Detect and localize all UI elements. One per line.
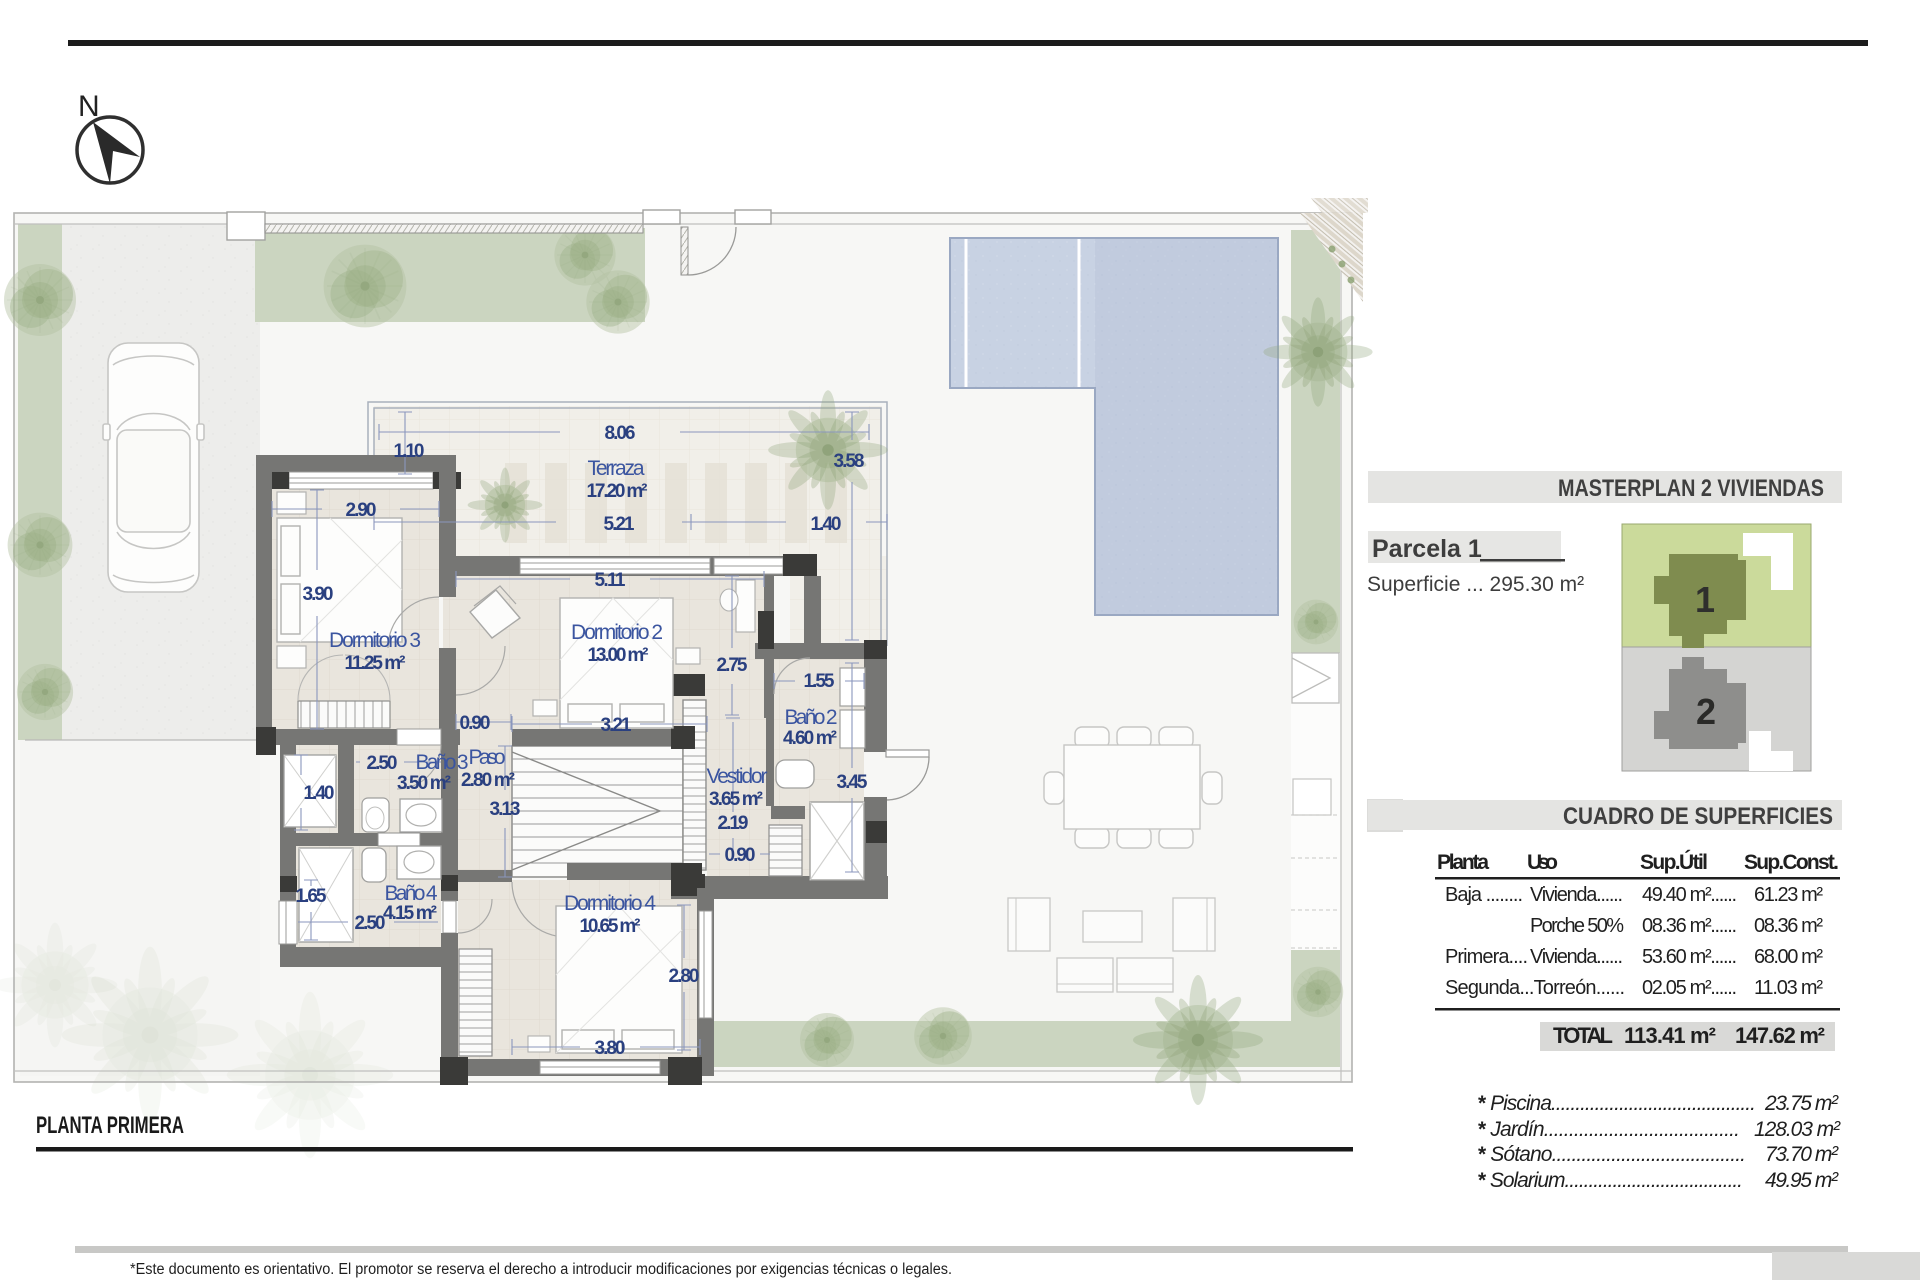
svg-text:Parcela 1: Parcela 1: [1372, 535, 1482, 563]
svg-text:3.58: 3.58: [834, 451, 865, 472]
svg-text:2.19: 2.19: [718, 813, 749, 834]
svg-text:2.80: 2.80: [669, 966, 700, 987]
svg-text:3.13: 3.13: [490, 799, 521, 820]
svg-text:Uso: Uso: [1527, 851, 1558, 874]
svg-text:Paso: Paso: [469, 746, 506, 769]
svg-text:5.11: 5.11: [595, 570, 626, 591]
svg-text:5.21: 5.21: [604, 514, 635, 535]
svg-text:08.36 m²......: 08.36 m²......: [1642, 915, 1737, 937]
svg-text:Dormitorio 2: Dormitorio 2: [571, 621, 663, 644]
svg-text:8.06: 8.06: [605, 423, 636, 444]
svg-text:1.10: 1.10: [394, 441, 425, 462]
svg-text:23.75 m²: 23.75 m²: [1764, 1092, 1839, 1115]
svg-text:* Sótano......................: * Sótano................................…: [1478, 1143, 1746, 1166]
svg-text:*Este documento es orientativo: *Este documento es orientativo. El promo…: [130, 1261, 952, 1278]
svg-text:49.95 m²: 49.95 m²: [1765, 1169, 1839, 1192]
svg-text:4.15 m²: 4.15 m²: [383, 903, 437, 924]
svg-text:3.21: 3.21: [601, 715, 632, 736]
svg-text:2.75: 2.75: [717, 655, 748, 676]
svg-text:Porche 50%: Porche 50%: [1530, 915, 1624, 937]
svg-text:Sup.Útil: Sup.Útil: [1640, 850, 1708, 874]
svg-text:Segunda...Torreón......: Segunda...Torreón......: [1445, 977, 1625, 999]
svg-text:* Piscina.....................: * Piscina...............................…: [1478, 1092, 1756, 1115]
svg-text:Planta: Planta: [1437, 851, 1489, 874]
svg-text:13.00 m²: 13.00 m²: [588, 645, 649, 666]
svg-text:11.25 m²: 11.25 m²: [345, 653, 406, 674]
svg-text:3.80: 3.80: [595, 1038, 626, 1059]
svg-text:17.20 m²: 17.20 m²: [587, 481, 648, 502]
svg-text:* Jardín......................: * Jardín................................…: [1478, 1118, 1740, 1141]
svg-text:02.05 m²......: 02.05 m²......: [1642, 977, 1737, 999]
svg-text:73.70 m²: 73.70 m²: [1765, 1143, 1839, 1166]
svg-text:1: 1: [1695, 579, 1715, 620]
svg-text:MASTERPLAN 2 VIVIENDAS: MASTERPLAN 2 VIVIENDAS: [1558, 475, 1824, 502]
svg-text:61.23 m²: 61.23 m²: [1754, 884, 1823, 906]
svg-text:147.62 m²: 147.62 m²: [1735, 1023, 1825, 1048]
svg-text:3.50 m²: 3.50 m²: [397, 773, 451, 794]
svg-text:Baño 2: Baño 2: [785, 706, 838, 729]
svg-text:3.45: 3.45: [837, 772, 868, 793]
svg-text:Dormitorio 3: Dormitorio 3: [329, 629, 421, 652]
svg-text:1.55: 1.55: [804, 671, 835, 692]
svg-text:Primera....: Primera....: [1445, 946, 1528, 968]
svg-text:2: 2: [1696, 691, 1716, 732]
svg-text:Vivienda......: Vivienda......: [1530, 946, 1623, 968]
svg-text:Baja ........: Baja ........: [1445, 884, 1523, 906]
svg-text:4.60 m²: 4.60 m²: [783, 728, 837, 749]
svg-text:08.36 m²: 08.36 m²: [1754, 915, 1823, 937]
svg-text:1.40: 1.40: [304, 783, 335, 804]
svg-text:68.00 m²: 68.00 m²: [1754, 946, 1823, 968]
svg-text:PLANTA PRIMERA: PLANTA PRIMERA: [36, 1112, 184, 1139]
svg-text:2.90: 2.90: [346, 500, 377, 521]
svg-text:0.90: 0.90: [725, 845, 756, 866]
svg-text:1.40: 1.40: [811, 514, 842, 535]
svg-text:Superficie ... 295.30 m²: Superficie ... 295.30 m²: [1367, 573, 1584, 596]
svg-text:TOTAL: TOTAL: [1553, 1023, 1613, 1048]
svg-text:Baño 4: Baño 4: [385, 882, 438, 905]
svg-text:CUADRO DE SUPERFICIES: CUADRO DE SUPERFICIES: [1563, 803, 1833, 830]
svg-text:128.03 m²: 128.03 m²: [1754, 1118, 1841, 1141]
svg-text:Dormitorio 4: Dormitorio 4: [564, 892, 656, 915]
svg-text:2.50: 2.50: [355, 913, 386, 934]
svg-text:Vivienda......: Vivienda......: [1530, 884, 1623, 906]
svg-text:Sup.Const.: Sup.Const.: [1744, 851, 1839, 874]
svg-text:113.41 m²: 113.41 m²: [1624, 1023, 1716, 1048]
svg-text:0.90: 0.90: [460, 713, 491, 734]
svg-text:Vestidor: Vestidor: [707, 765, 768, 788]
svg-text:* Solarium....................: * Solarium..............................…: [1478, 1169, 1743, 1192]
svg-text:53.60 m²......: 53.60 m²......: [1642, 946, 1737, 968]
svg-text:Baño 3: Baño 3: [416, 751, 469, 774]
svg-text:10.65 m²: 10.65 m²: [580, 916, 641, 937]
svg-text:3.90: 3.90: [303, 584, 334, 605]
svg-text:1.65: 1.65: [296, 886, 327, 907]
svg-text:11.03 m²: 11.03 m²: [1754, 977, 1823, 999]
svg-text:2.50: 2.50: [367, 753, 398, 774]
svg-text:49.40 m²......: 49.40 m²......: [1642, 884, 1737, 906]
svg-text:3.65 m²: 3.65 m²: [709, 789, 763, 810]
svg-text:2.80 m²: 2.80 m²: [461, 770, 515, 791]
svg-text:Terraza: Terraza: [588, 457, 645, 480]
